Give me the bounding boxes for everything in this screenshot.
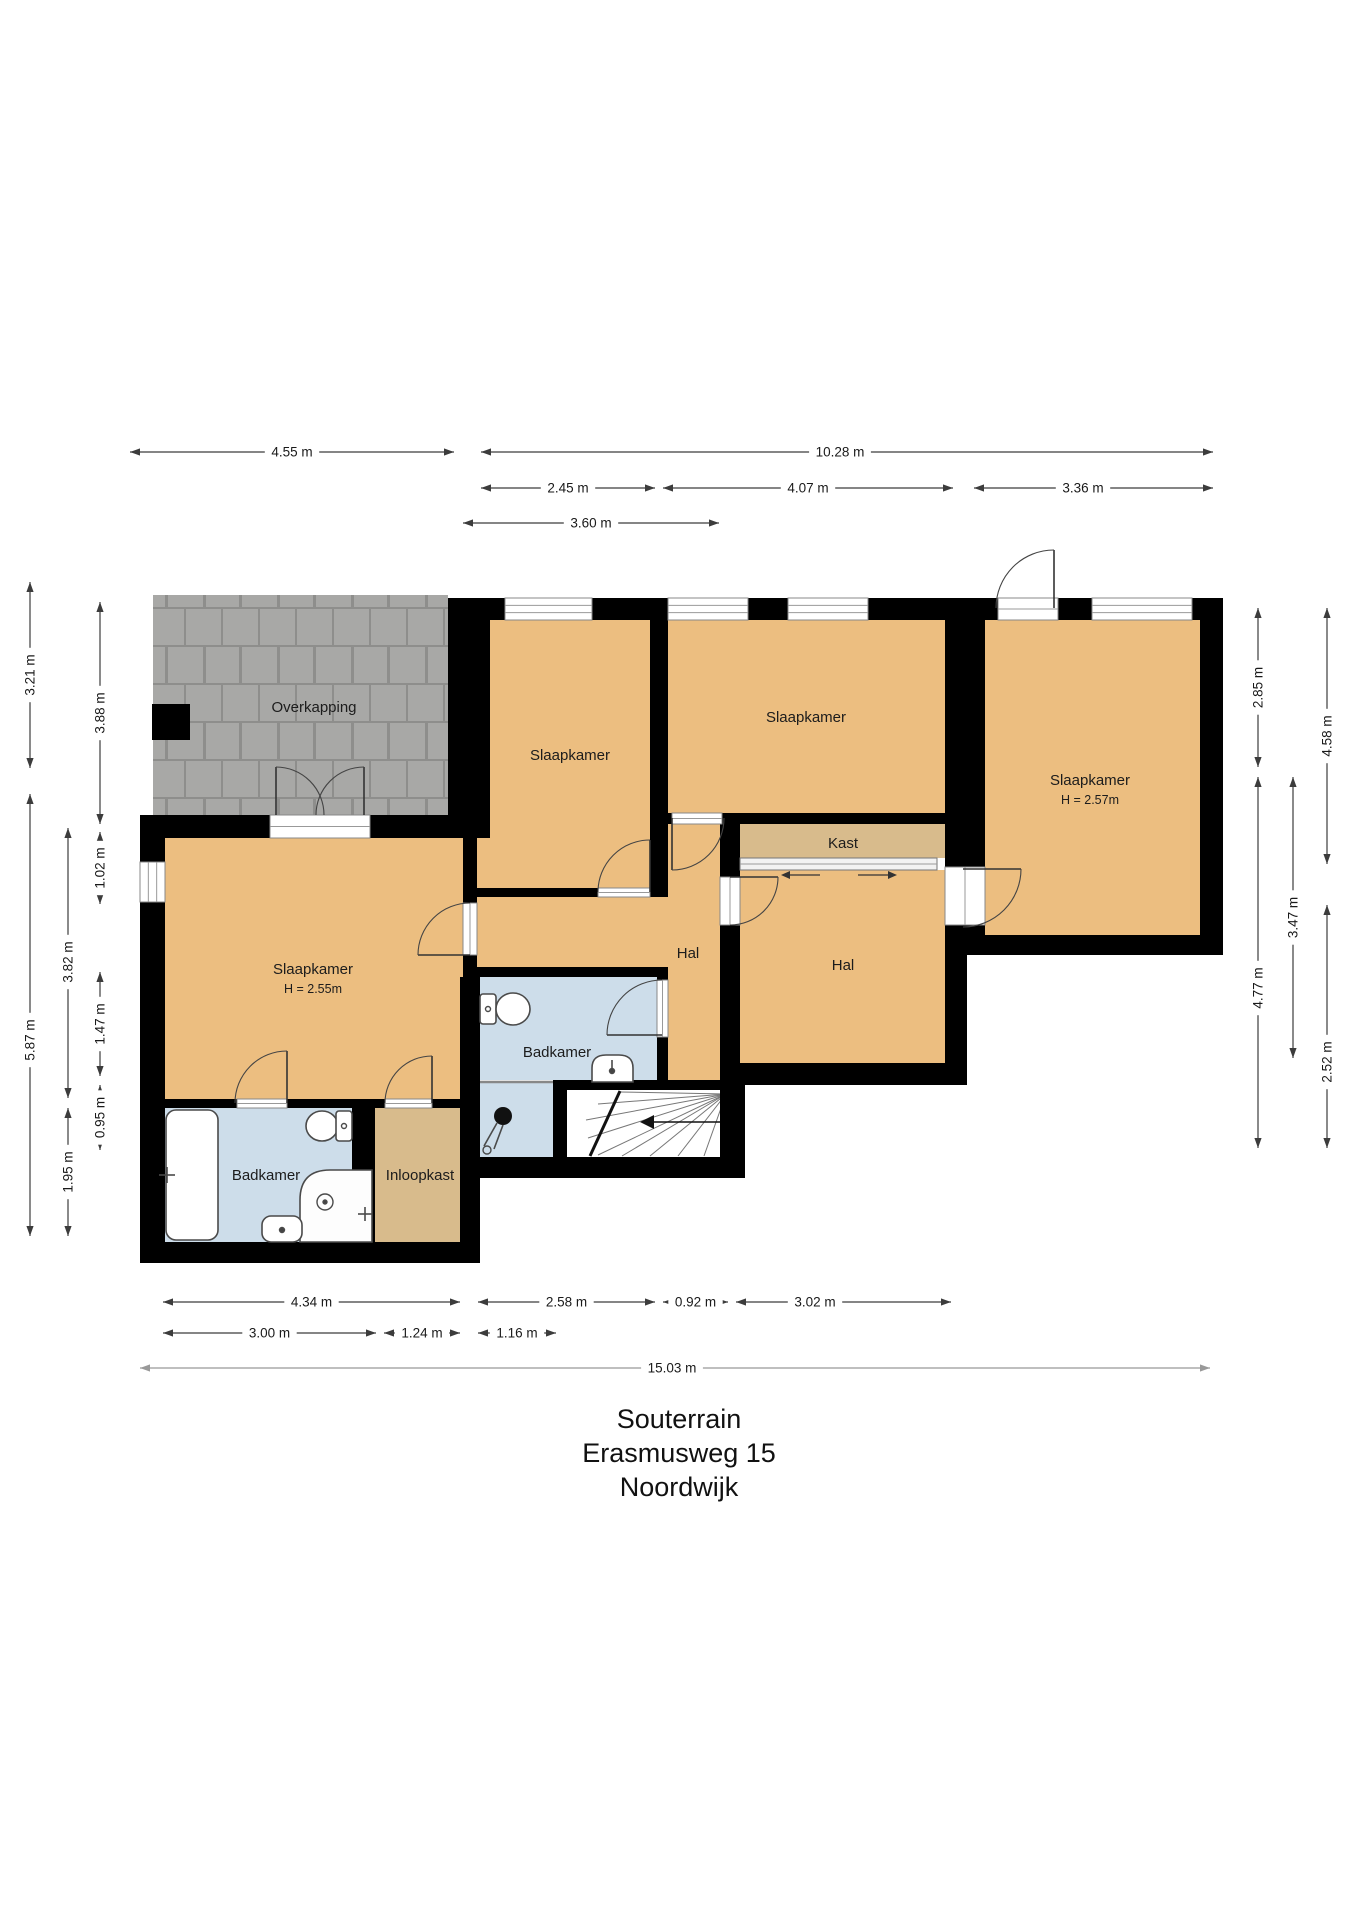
toilet-button bbox=[342, 1124, 347, 1129]
pillar bbox=[152, 704, 190, 740]
title-block: Souterrain Erasmusweg 15 Noordwijk bbox=[0, 1402, 1358, 1504]
wall bbox=[720, 1063, 967, 1085]
dimension-arrow bbox=[1323, 854, 1330, 864]
room-slaapkamer-small-b-fill bbox=[477, 838, 650, 888]
dimension-arrow bbox=[26, 794, 33, 804]
wall bbox=[945, 935, 967, 1085]
wall bbox=[460, 977, 480, 1263]
dimension-arrow bbox=[1323, 905, 1330, 915]
dimension-label: 4.77 m bbox=[1251, 967, 1266, 1008]
room-height-label: H = 2.55m bbox=[284, 982, 342, 996]
dimension-arrow bbox=[663, 484, 673, 491]
dimension-label: 3.60 m bbox=[570, 516, 611, 531]
dimension-arrow bbox=[64, 828, 71, 838]
shower-drain bbox=[323, 1200, 327, 1204]
floor-plan: OverkappingSlaapkamerSlaapkamerSlaapkame… bbox=[0, 0, 1358, 1920]
shower-tray bbox=[300, 1170, 372, 1242]
dimension-arrow bbox=[96, 894, 103, 904]
dimension-arrow bbox=[163, 1329, 173, 1336]
dimension-arrow bbox=[1289, 1048, 1296, 1058]
dimension-label: 2.45 m bbox=[547, 481, 588, 496]
dimension-arrow bbox=[974, 484, 984, 491]
dimension-arrow bbox=[546, 1329, 556, 1336]
dimension-arrow bbox=[943, 484, 953, 491]
dimension-label: 1.47 m bbox=[93, 1003, 108, 1044]
dimension-arrow bbox=[736, 1298, 746, 1305]
dimension-arrow bbox=[1289, 777, 1296, 787]
toilet-bowl bbox=[496, 993, 530, 1025]
wall bbox=[650, 598, 668, 888]
dimension-label: 4.34 m bbox=[291, 1295, 332, 1310]
dimension-arrow bbox=[163, 1298, 173, 1305]
wall bbox=[553, 1083, 567, 1157]
sink-drain bbox=[610, 1069, 615, 1074]
dimension-arrow bbox=[450, 1329, 460, 1336]
wall bbox=[1200, 598, 1223, 955]
dimension-arrow bbox=[444, 448, 454, 455]
dimension-arrow bbox=[96, 1066, 103, 1076]
dimension-arrow bbox=[64, 1108, 71, 1118]
room-label: Slaapkamer bbox=[766, 709, 846, 726]
dimension-arrow bbox=[96, 832, 103, 842]
room-height-label: H = 2.57m bbox=[1061, 793, 1119, 807]
dimension-arrow bbox=[478, 1298, 488, 1305]
window bbox=[505, 598, 592, 620]
dimension-label: 4.55 m bbox=[271, 445, 312, 460]
wall bbox=[463, 967, 668, 977]
dimension-arrow bbox=[1323, 608, 1330, 618]
room-label: Inloopkast bbox=[386, 1167, 455, 1184]
dimension-label: 3.21 m bbox=[23, 654, 38, 695]
title-floor: Souterrain bbox=[0, 1402, 1358, 1436]
dimension-arrow bbox=[450, 1298, 460, 1305]
dimension-arrow bbox=[645, 1298, 655, 1305]
wall bbox=[720, 1080, 745, 1178]
dimension-arrow bbox=[1254, 1138, 1261, 1148]
room-label: Slaapkamer bbox=[530, 747, 610, 764]
wall bbox=[140, 1242, 480, 1263]
floor-plan-svg: OverkappingSlaapkamerSlaapkamerSlaapkame… bbox=[0, 0, 1358, 1920]
dimension-arrow bbox=[941, 1298, 951, 1305]
room-label: Hal bbox=[677, 945, 700, 962]
wall bbox=[448, 598, 490, 838]
dimension-arrow bbox=[1203, 448, 1213, 455]
dimension-arrow bbox=[26, 758, 33, 768]
wall bbox=[460, 1157, 745, 1178]
dimension-arrow bbox=[481, 484, 491, 491]
dimension-label: 3.47 m bbox=[1286, 897, 1301, 938]
dimension-arrow bbox=[384, 1329, 394, 1336]
room-label: Slaapkamer bbox=[1050, 772, 1130, 789]
room-label: Badkamer bbox=[232, 1167, 300, 1184]
dimension-arrow bbox=[463, 519, 473, 526]
dimension-label: 1.95 m bbox=[61, 1151, 76, 1192]
dimension-arrow bbox=[64, 1088, 71, 1098]
dimension-arrow bbox=[26, 582, 33, 592]
dimension-label: 1.02 m bbox=[93, 847, 108, 888]
dimension-arrow bbox=[1200, 1364, 1210, 1371]
dimension-label: 2.52 m bbox=[1320, 1041, 1335, 1082]
dimension-label: 15.03 m bbox=[648, 1361, 697, 1376]
window bbox=[1092, 598, 1192, 620]
toilet-bowl bbox=[306, 1111, 338, 1141]
dimension-label: 2.58 m bbox=[546, 1295, 587, 1310]
room-label: Badkamer bbox=[523, 1044, 591, 1061]
dimension-label: 3.82 m bbox=[61, 941, 76, 982]
dimension-label: 3.00 m bbox=[249, 1326, 290, 1341]
room-label: Slaapkamer bbox=[273, 961, 353, 978]
dimension-label: 1.16 m bbox=[496, 1326, 537, 1341]
dimension-label: 3.02 m bbox=[794, 1295, 835, 1310]
room-slaapkamer-small-fill bbox=[490, 620, 650, 838]
wall bbox=[720, 824, 740, 1080]
dimension-arrow bbox=[96, 602, 103, 612]
dimension-arrow bbox=[645, 484, 655, 491]
wall bbox=[553, 1080, 745, 1090]
room-label: Overkapping bbox=[271, 699, 356, 716]
dimension-label: 3.88 m bbox=[93, 692, 108, 733]
dimension-arrow bbox=[481, 448, 491, 455]
dimension-label: 5.87 m bbox=[23, 1019, 38, 1060]
dimension-arrow bbox=[130, 448, 140, 455]
dimension-arrow bbox=[140, 1364, 150, 1371]
title-street: Erasmusweg 15 bbox=[0, 1436, 1358, 1470]
window bbox=[788, 598, 868, 620]
dimension-arrow bbox=[709, 519, 719, 526]
room-hal-left-a-fill bbox=[477, 897, 668, 967]
dimension-arrow bbox=[478, 1329, 488, 1336]
dimension-arrow bbox=[1254, 757, 1261, 767]
dimension-arrow bbox=[366, 1329, 376, 1336]
dimension-label: 0.95 m bbox=[93, 1097, 108, 1138]
dimension-arrow bbox=[1254, 608, 1261, 618]
toilet-button bbox=[486, 1007, 491, 1012]
room-label: Kast bbox=[828, 835, 859, 852]
dimension-arrow bbox=[64, 1226, 71, 1236]
dimension-label: 10.28 m bbox=[816, 445, 865, 460]
dimension-label: 4.07 m bbox=[787, 481, 828, 496]
dimension-label: 2.85 m bbox=[1251, 667, 1266, 708]
dimension-label: 1.24 m bbox=[401, 1326, 442, 1341]
dimension-arrow bbox=[96, 972, 103, 982]
dimension-arrow bbox=[1203, 484, 1213, 491]
room-label: Hal bbox=[832, 957, 855, 974]
dimension-label: 3.36 m bbox=[1062, 481, 1103, 496]
wall bbox=[967, 935, 1223, 955]
window bbox=[140, 862, 165, 902]
shower-head bbox=[494, 1107, 512, 1125]
sink-drain bbox=[280, 1228, 285, 1233]
dimension-arrow bbox=[1254, 777, 1261, 787]
title-city: Noordwijk bbox=[0, 1470, 1358, 1504]
dimension-arrow bbox=[96, 814, 103, 824]
dimension-label: 0.92 m bbox=[675, 1295, 716, 1310]
window bbox=[668, 598, 748, 620]
room-shower-area-fill bbox=[480, 1083, 553, 1157]
dimension-arrow bbox=[26, 1226, 33, 1236]
dimension-arrow bbox=[1323, 1138, 1330, 1148]
dimension-label: 4.58 m bbox=[1320, 715, 1335, 756]
